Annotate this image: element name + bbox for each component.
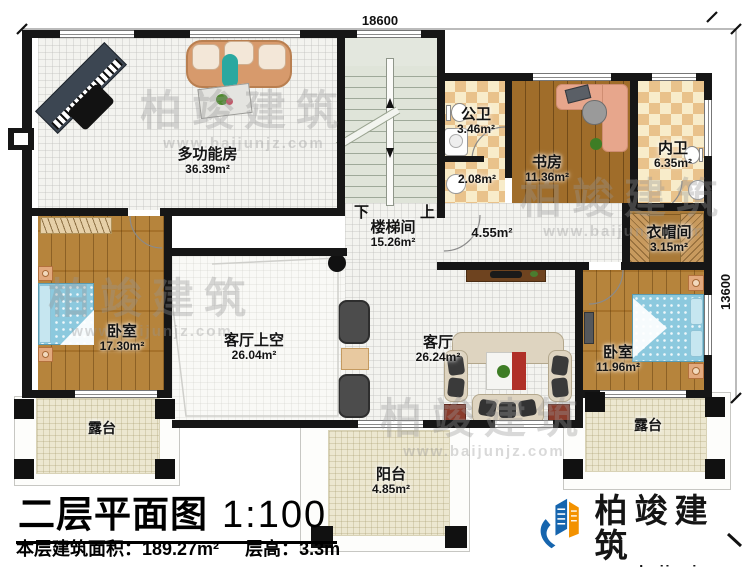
wall (337, 30, 345, 216)
column (705, 397, 725, 417)
flower-decor (226, 98, 233, 105)
armchair (338, 374, 370, 418)
room-label-wash-area: 2.08m² (450, 173, 504, 187)
floor-height-label: 层高： (245, 539, 299, 559)
window (704, 100, 712, 156)
room-label-multifunction: 多功能房 36.39m² (150, 146, 265, 177)
balcony-door (358, 420, 423, 428)
wall (437, 30, 445, 218)
floor-area-value: 189.27m² (142, 539, 219, 559)
sofa-cushion-dark (478, 399, 498, 418)
plant-icon (590, 138, 602, 150)
room-label-living-void: 客厅上空 26.04m² (205, 332, 303, 363)
company-name: 柏竣建筑 (595, 494, 750, 563)
sofa-cushion-dark (551, 355, 569, 376)
wall (160, 208, 340, 216)
plant-icon (497, 365, 510, 378)
desk-chair (582, 100, 607, 125)
wall-flue-box-inner (14, 133, 28, 145)
sofa-cushion-dark (447, 377, 465, 398)
person-figure (222, 54, 238, 88)
wall (437, 262, 583, 270)
room-label-stairwell: 楼梯间 15.26m² (350, 219, 436, 250)
column (14, 399, 34, 419)
company-website: www.baijunjz.com (595, 563, 750, 567)
nightstand (688, 275, 704, 291)
armchair (338, 300, 370, 344)
room-label-cloakroom: 衣帽间 3.15m² (631, 224, 707, 255)
room-label-terrace-right: 露台 (618, 417, 678, 433)
wall (442, 156, 484, 162)
dimension-depth: 13600 (718, 260, 733, 324)
room-label-hallway: 4.55m² (461, 226, 523, 241)
wall (621, 262, 712, 270)
column (14, 459, 34, 479)
nightstand (688, 363, 704, 379)
floor-height-value: 3.3m (299, 539, 340, 559)
window (190, 30, 300, 38)
dimension-width: 18600 (348, 13, 412, 28)
wall (622, 203, 630, 270)
drawing-scale: 1:100 (222, 494, 327, 537)
company-logo-block: 柏竣建筑 www.baijunjz.com (536, 494, 750, 567)
column (563, 459, 583, 479)
column (705, 459, 725, 479)
window (533, 73, 611, 81)
room-label-bedroom-left: 卧室 17.30m² (88, 323, 156, 354)
column (155, 399, 175, 419)
wall (172, 420, 358, 428)
window (75, 390, 157, 398)
wall (172, 248, 347, 256)
company-logo-icon (536, 494, 587, 552)
tv-icon (490, 271, 522, 278)
sofa-cushion (258, 44, 286, 70)
stair-stringer (386, 58, 394, 206)
page-title: 二层平面图 (18, 484, 208, 538)
plant-icon (530, 271, 538, 277)
sofa-cushion-dark (518, 399, 538, 418)
rug-stripe (512, 352, 526, 390)
wall (630, 73, 638, 211)
column (155, 459, 175, 479)
room-label-balcony: 阳台 4.85m² (358, 466, 424, 497)
wall (22, 208, 128, 216)
wall (575, 262, 583, 420)
bed-pillow (39, 285, 51, 343)
window (600, 390, 686, 398)
room-label-private-bath: 内卫 6.35m² (641, 140, 705, 171)
room-label-public-bath: 公卫 3.46m² (445, 106, 507, 137)
window (357, 30, 421, 38)
sofa-cushion-dark (499, 402, 516, 418)
room-label-bedroom-right: 卧室 11.96m² (584, 344, 652, 375)
column (585, 392, 605, 412)
wall (22, 30, 32, 398)
room-label-terrace-left: 露台 (72, 420, 132, 436)
nightstand (38, 347, 53, 362)
window (495, 420, 553, 428)
sofa-cushion-dark (551, 377, 569, 398)
bed-pillow (690, 298, 703, 325)
wall (164, 208, 172, 398)
window (60, 30, 134, 38)
column (445, 526, 467, 548)
bed-pillow (690, 330, 703, 357)
floor-area-label: 本层建筑面积： (16, 539, 142, 559)
room-label-study: 书房 11.36m² (514, 154, 580, 185)
tea-table (341, 348, 369, 370)
window (704, 295, 712, 355)
floor-plan-canvas: 柏竣建筑 www.baijunjz.com 柏竣建筑 www.baijunjz.… (0, 0, 750, 567)
wall (583, 262, 589, 270)
nightstand (38, 266, 53, 281)
wardrobe-hangers (40, 217, 112, 234)
window (652, 73, 696, 81)
dresser (584, 312, 594, 344)
sofa-cushion (192, 44, 220, 70)
floor-stats: 本层建筑面积：189.27m²层高：3.3m (16, 535, 340, 561)
room-label-living: 客厅 26.24m² (404, 334, 472, 365)
